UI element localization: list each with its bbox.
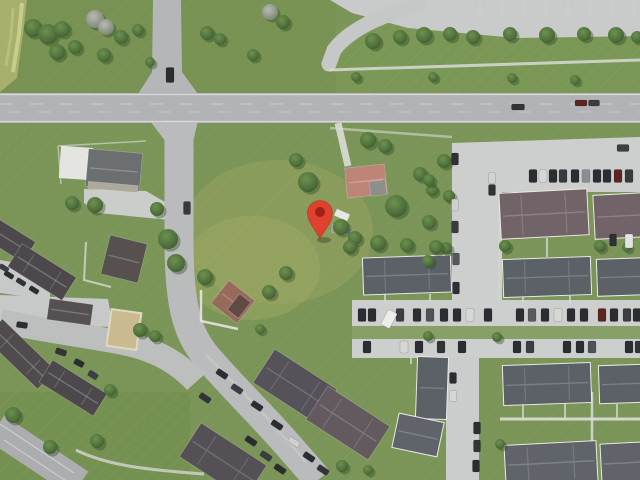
apartment-east-6 bbox=[502, 362, 591, 405]
tree-canopy bbox=[370, 235, 386, 251]
tree-canopy bbox=[365, 33, 381, 49]
car bbox=[559, 170, 567, 183]
tree-canopy bbox=[429, 240, 443, 254]
car bbox=[625, 170, 633, 183]
tree-canopy bbox=[363, 465, 373, 475]
tree-canopy bbox=[65, 196, 79, 210]
tree-canopy bbox=[197, 269, 213, 285]
apartment-east-9-roof bbox=[600, 442, 640, 480]
car bbox=[166, 68, 174, 83]
car bbox=[528, 309, 536, 322]
tree-canopy bbox=[149, 330, 161, 342]
car bbox=[588, 341, 596, 353]
tree-canopy bbox=[54, 21, 70, 37]
satellite-map[interactable] bbox=[0, 0, 640, 480]
house-red-roof-gray-section-roof bbox=[369, 180, 386, 197]
car bbox=[567, 309, 575, 322]
tree-canopy bbox=[158, 229, 178, 249]
tree-canopy bbox=[594, 240, 606, 252]
car bbox=[474, 440, 481, 452]
tree-canopy bbox=[104, 384, 116, 396]
tree-canopy bbox=[276, 15, 290, 29]
car bbox=[396, 309, 404, 322]
tree-canopy bbox=[443, 27, 457, 41]
car bbox=[549, 170, 557, 183]
tree-canopy bbox=[279, 266, 293, 280]
car bbox=[440, 309, 448, 322]
tree-canopy bbox=[378, 139, 392, 153]
tree-canopy bbox=[247, 49, 259, 61]
car bbox=[453, 282, 460, 294]
tree-canopy bbox=[608, 27, 624, 43]
car bbox=[473, 460, 480, 472]
car bbox=[489, 185, 496, 196]
tree-canopy bbox=[422, 255, 434, 267]
apartment-east-4 bbox=[415, 356, 448, 419]
tree-canopy bbox=[570, 75, 580, 85]
tree-canopy bbox=[503, 27, 517, 41]
tree-canopy bbox=[214, 33, 226, 45]
car bbox=[576, 341, 584, 353]
tree-canopy bbox=[423, 174, 435, 186]
tree-canopy bbox=[49, 44, 65, 60]
car bbox=[484, 309, 492, 322]
tree-canopy bbox=[90, 434, 104, 448]
car bbox=[474, 422, 481, 434]
car bbox=[589, 100, 600, 106]
car bbox=[571, 170, 579, 183]
car bbox=[466, 309, 474, 322]
tree-canopy bbox=[167, 254, 185, 272]
car bbox=[415, 341, 423, 353]
tree-canopy bbox=[422, 215, 436, 229]
tree-canopy bbox=[289, 153, 303, 167]
car bbox=[363, 341, 371, 353]
car bbox=[450, 373, 457, 384]
car bbox=[610, 234, 617, 246]
tree-canopy bbox=[360, 132, 376, 148]
tree-canopy bbox=[343, 240, 357, 254]
car bbox=[489, 173, 496, 184]
car bbox=[582, 170, 590, 183]
car bbox=[563, 341, 571, 353]
tree-canopy bbox=[495, 439, 505, 449]
apartment-northeast-2 bbox=[593, 193, 640, 240]
apartment-east-4-ridge bbox=[420, 388, 445, 389]
car bbox=[580, 309, 588, 322]
car bbox=[413, 309, 421, 322]
car bbox=[512, 104, 525, 110]
tree-canopy bbox=[5, 407, 21, 423]
car bbox=[450, 391, 457, 402]
tree-canopy bbox=[68, 40, 82, 54]
car bbox=[623, 309, 631, 322]
car bbox=[633, 309, 640, 322]
car bbox=[625, 234, 633, 248]
tree-canopy bbox=[423, 331, 433, 341]
pin-inner-circle bbox=[315, 207, 325, 217]
tree-canopy bbox=[43, 440, 57, 454]
car bbox=[593, 170, 601, 183]
car bbox=[625, 341, 633, 353]
car bbox=[610, 309, 618, 322]
car bbox=[598, 309, 606, 322]
tree-canopy bbox=[133, 323, 147, 337]
car bbox=[16, 321, 28, 328]
tree-canopy bbox=[262, 4, 278, 20]
tree-canopy bbox=[114, 30, 128, 44]
tree-canopy bbox=[416, 27, 432, 43]
car bbox=[453, 253, 460, 265]
apartment-east-8 bbox=[504, 441, 598, 480]
apartment-east-9 bbox=[600, 442, 640, 480]
tree-canopy bbox=[539, 27, 555, 43]
car bbox=[452, 199, 459, 211]
tree-canopy bbox=[87, 197, 103, 213]
car bbox=[541, 309, 549, 322]
car bbox=[635, 341, 640, 353]
car bbox=[554, 309, 562, 322]
tree-canopy bbox=[336, 460, 348, 472]
tree-canopy bbox=[577, 27, 591, 41]
car bbox=[458, 341, 466, 353]
tree-canopy bbox=[466, 30, 480, 44]
house-red-roof-gray-section bbox=[369, 180, 386, 197]
car bbox=[453, 309, 461, 322]
tree-canopy bbox=[492, 332, 502, 342]
apartment-east-1 bbox=[362, 255, 451, 295]
apartment-northeast-1 bbox=[499, 189, 589, 240]
tree-canopy bbox=[499, 240, 511, 252]
car bbox=[400, 341, 408, 353]
car bbox=[368, 309, 376, 322]
car bbox=[516, 309, 524, 322]
car bbox=[184, 202, 191, 215]
car bbox=[614, 170, 622, 183]
car bbox=[452, 221, 459, 233]
tree-canopy bbox=[298, 172, 318, 192]
tree-canopy bbox=[97, 48, 111, 62]
tree-canopy bbox=[200, 26, 214, 40]
apartment-east-2 bbox=[502, 256, 591, 297]
car bbox=[529, 170, 537, 183]
apartment-east-8-roof bbox=[504, 441, 598, 480]
tree-canopy bbox=[145, 57, 155, 67]
tree-canopy bbox=[333, 219, 349, 235]
tree-canopy bbox=[507, 73, 517, 83]
apartment-east-3 bbox=[596, 258, 640, 297]
tree-canopy bbox=[98, 19, 114, 35]
map-viewport[interactable] bbox=[0, 0, 640, 480]
tree-canopy bbox=[262, 285, 276, 299]
tree-canopy bbox=[132, 24, 144, 36]
car bbox=[437, 341, 445, 353]
tree-canopy bbox=[428, 72, 438, 82]
tree-canopy bbox=[385, 195, 407, 217]
car bbox=[452, 153, 459, 165]
tree-canopy bbox=[150, 202, 164, 216]
tree-canopy bbox=[351, 72, 361, 82]
car bbox=[526, 341, 534, 353]
car bbox=[513, 341, 521, 353]
car bbox=[539, 170, 547, 183]
tree-canopy bbox=[393, 30, 407, 44]
car bbox=[617, 145, 629, 152]
car bbox=[603, 170, 611, 183]
main-road bbox=[0, 93, 640, 123]
car bbox=[358, 309, 366, 322]
apartment-east-7 bbox=[598, 364, 640, 404]
tree-canopy bbox=[255, 324, 265, 334]
tree-canopy bbox=[400, 238, 414, 252]
car bbox=[426, 309, 434, 322]
tree-canopy bbox=[437, 154, 451, 168]
car bbox=[575, 100, 587, 106]
